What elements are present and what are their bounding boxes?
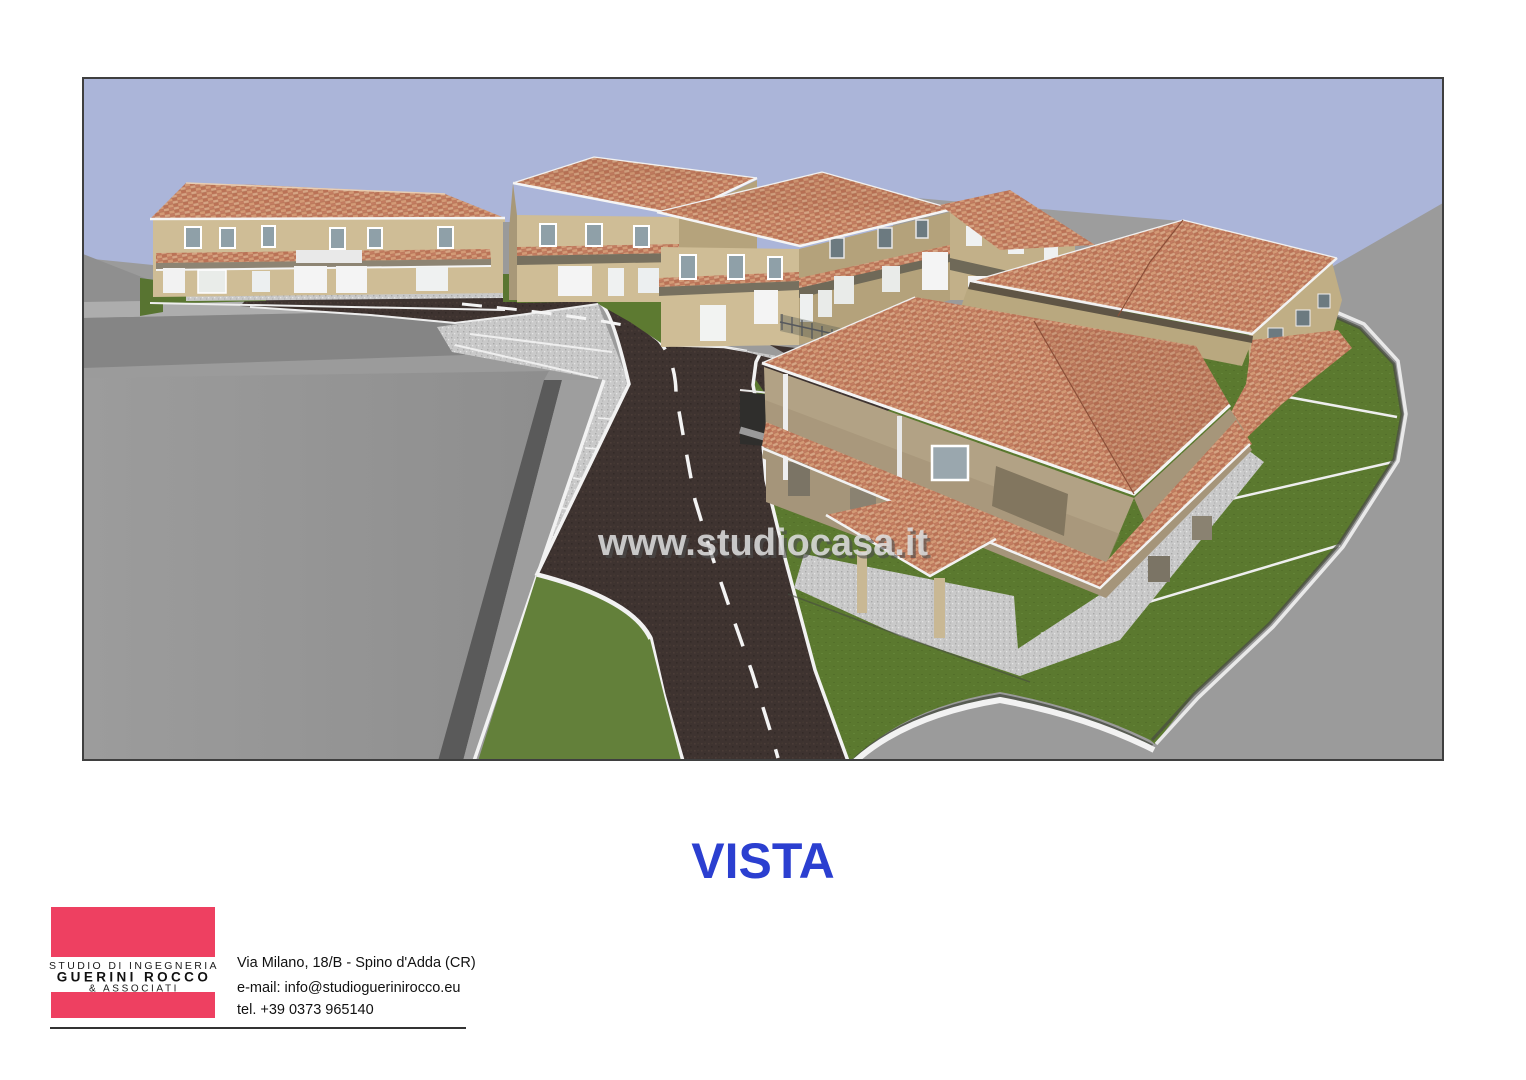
svg-text:www.studiocasa.it: www.studiocasa.it	[597, 522, 928, 564]
svg-text:VISTA: VISTA	[691, 833, 835, 889]
svg-text:e-mail: info@studioguerinirocc: e-mail: info@studioguerinirocco.eu	[237, 980, 460, 996]
svg-text:& ASSOCIATI: & ASSOCIATI	[89, 984, 179, 995]
svg-text:GUERINI ROCCO: GUERINI ROCCO	[57, 970, 211, 985]
svg-text:Via Milano, 18/B - Spino d'Add: Via Milano, 18/B - Spino d'Adda (CR)	[237, 955, 476, 971]
svg-text:tel. +39 0373 965140: tel. +39 0373 965140	[237, 1002, 374, 1018]
